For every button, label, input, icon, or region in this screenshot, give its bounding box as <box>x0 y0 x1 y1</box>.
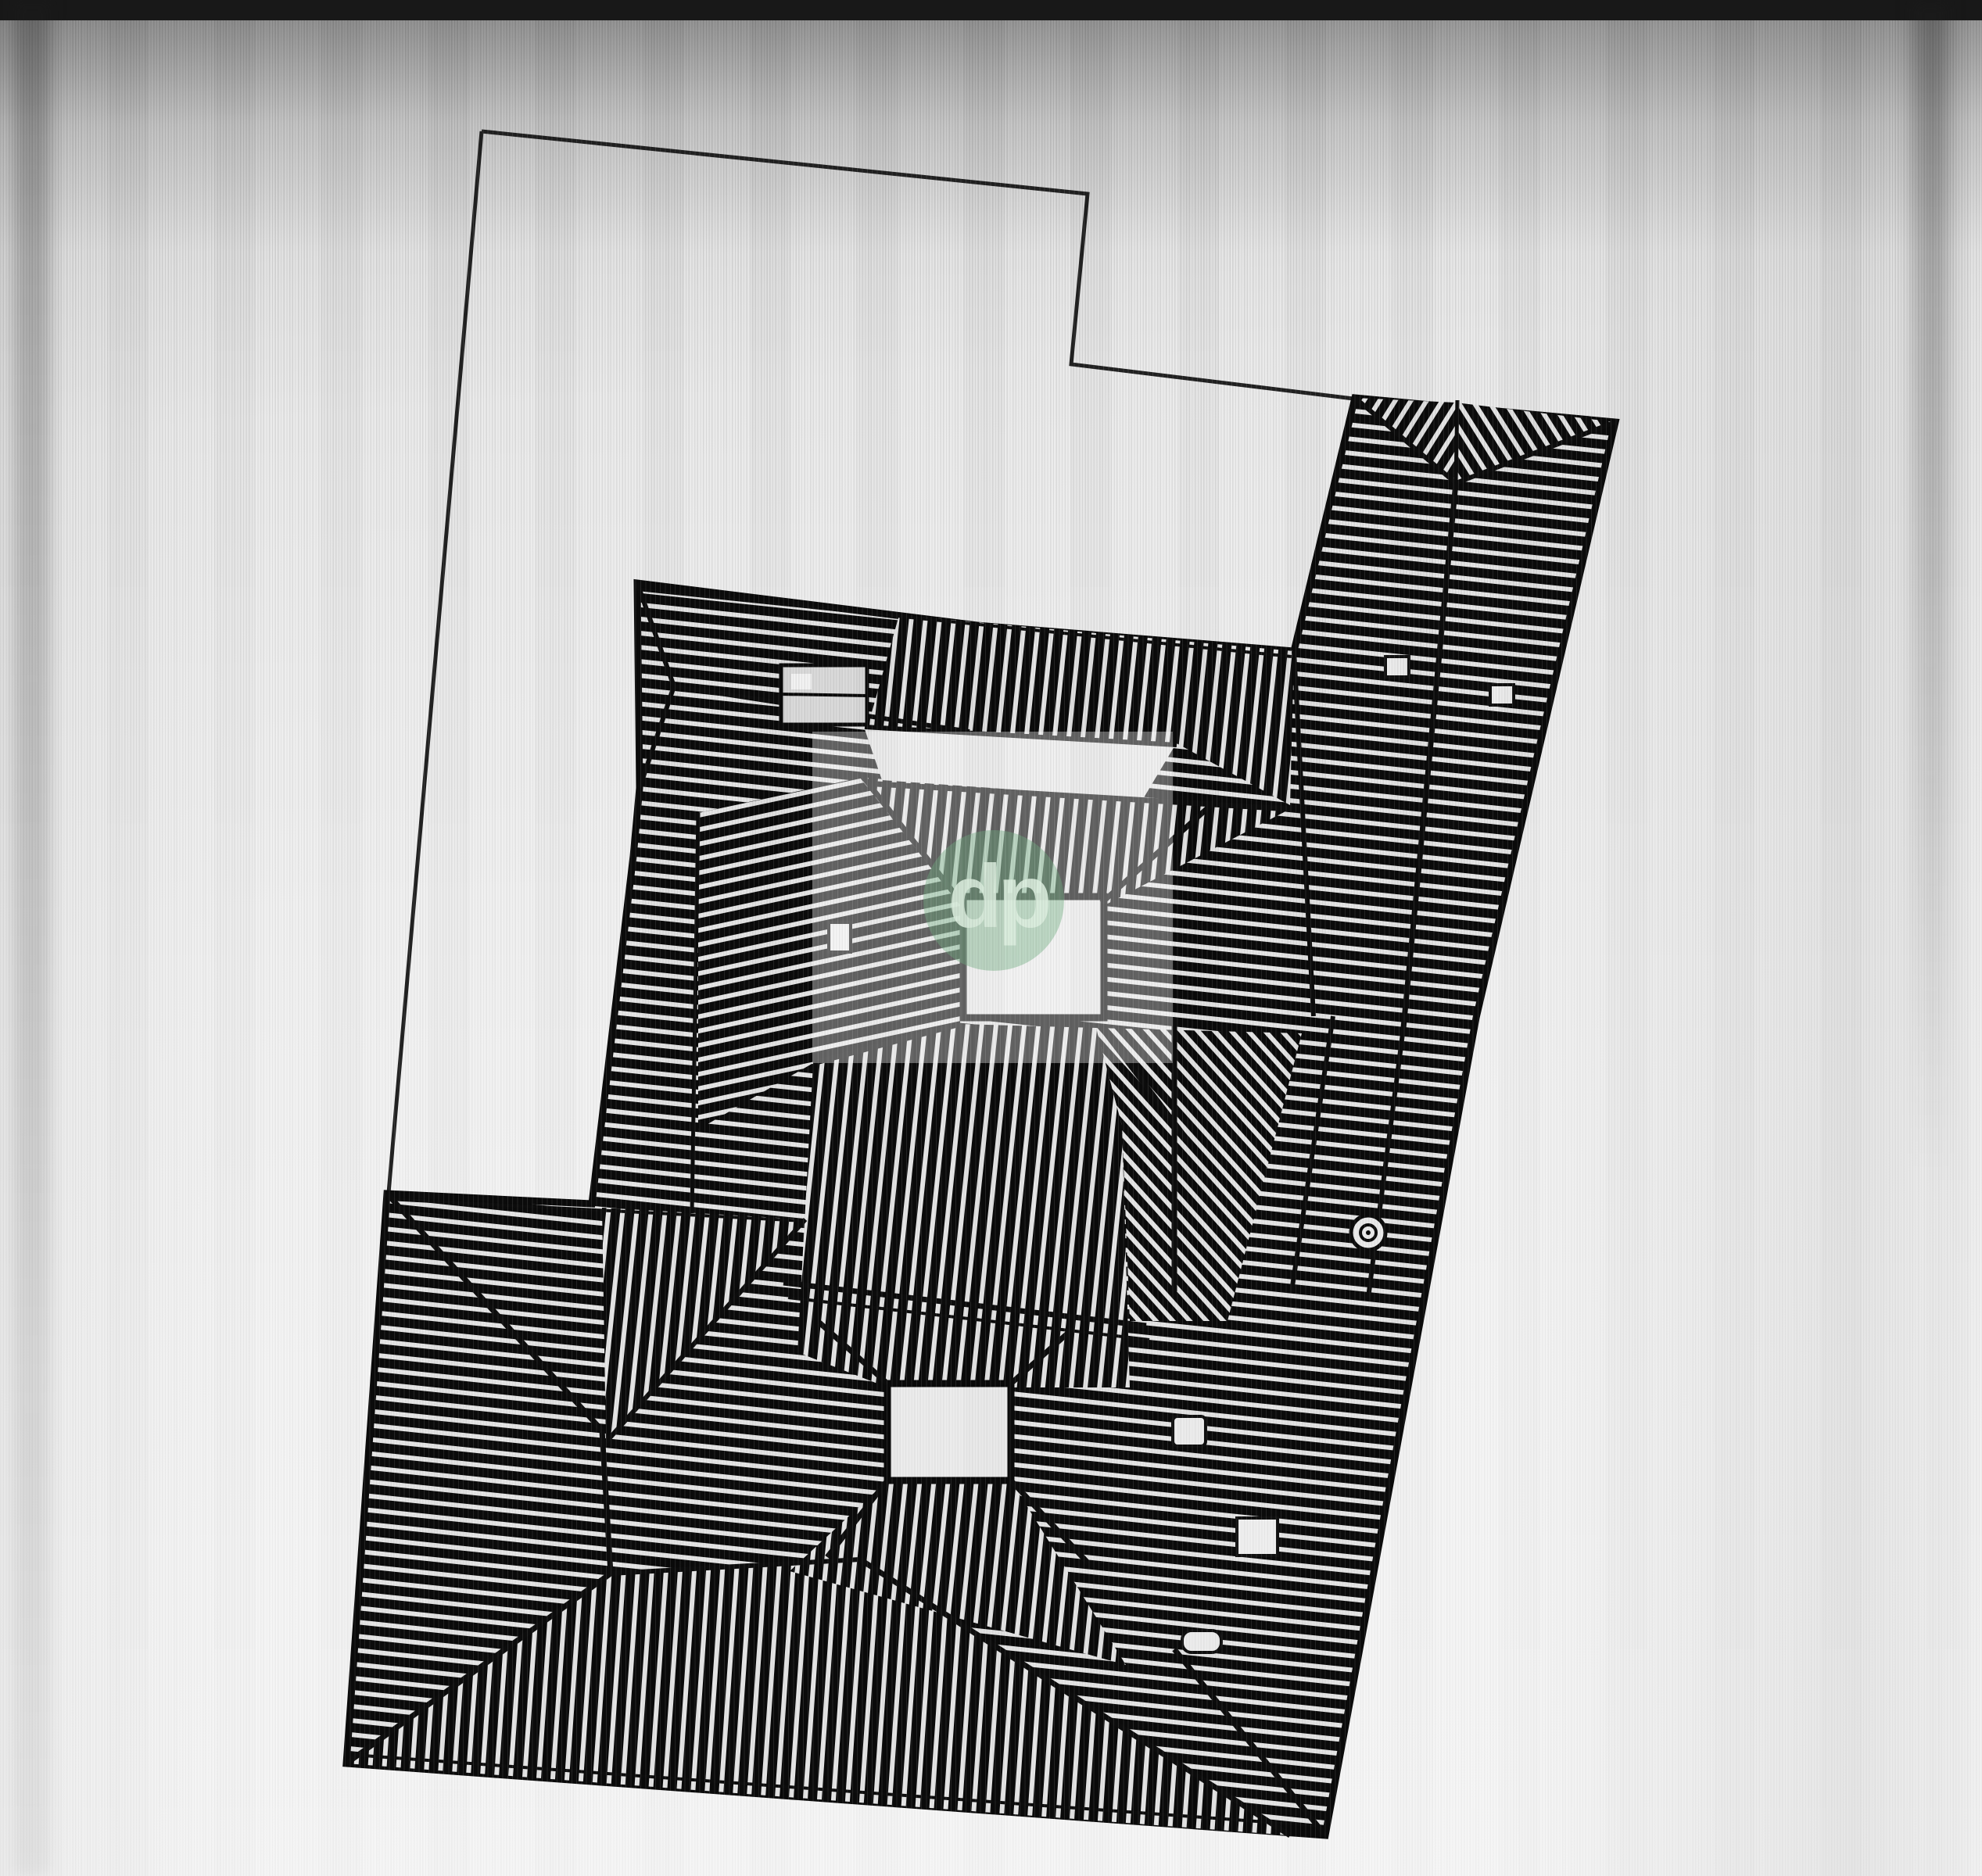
svg-text:dp: dp <box>948 847 1048 947</box>
